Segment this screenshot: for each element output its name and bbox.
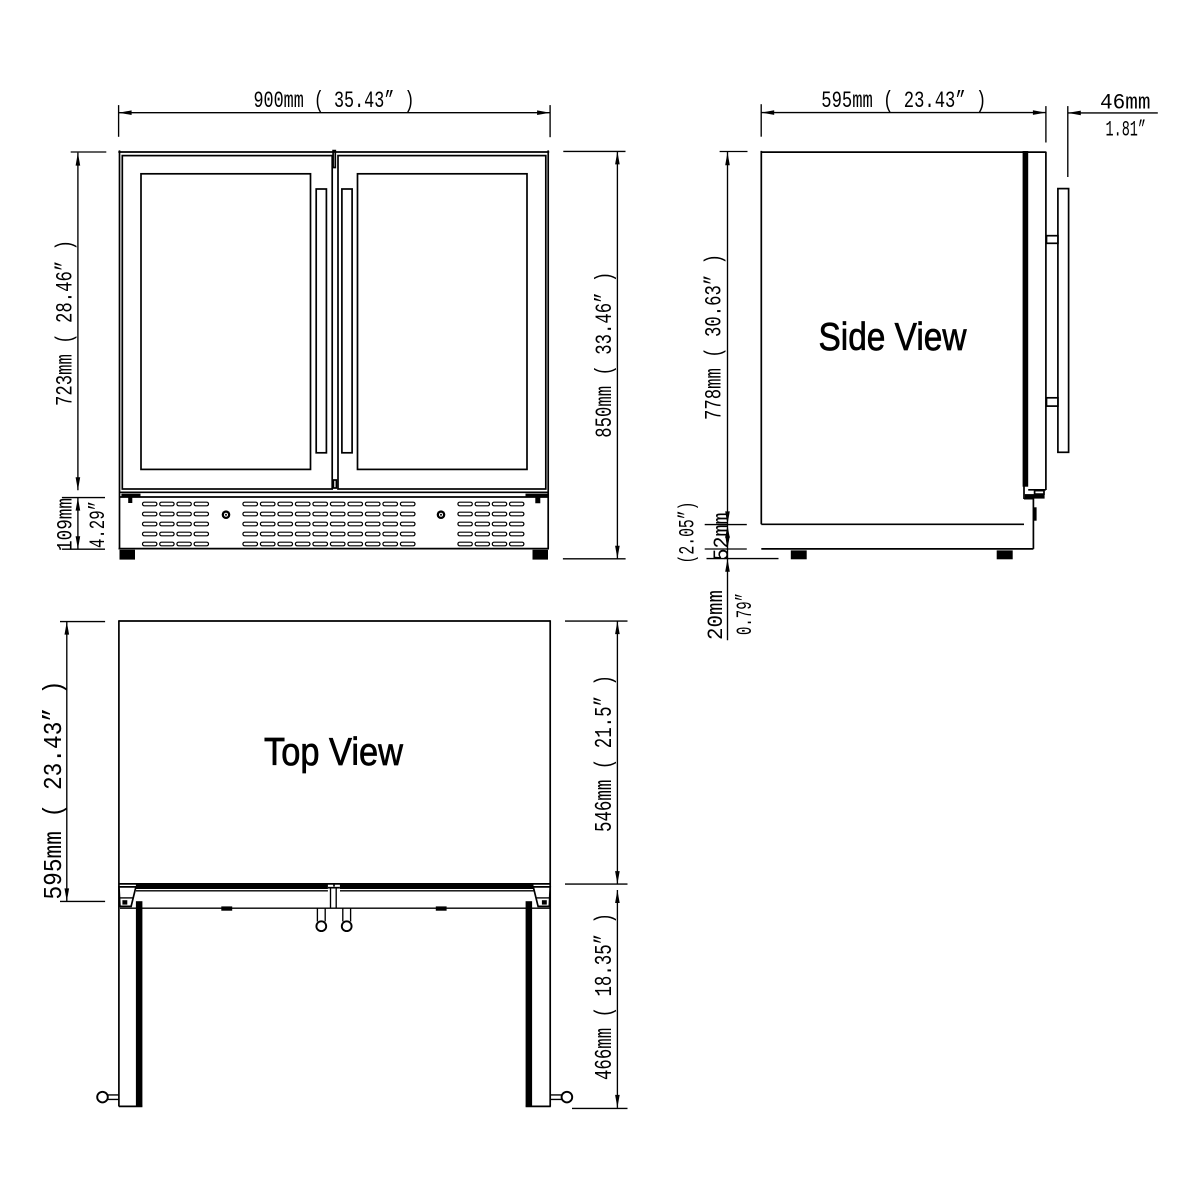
svg-text:(2.05”): (2.05”) — [676, 502, 701, 564]
svg-text:Top View: Top View — [264, 731, 404, 774]
svg-text:466mm ( 18.35” ): 466mm ( 18.35” ) — [592, 913, 619, 1080]
svg-text:46mm: 46mm — [1100, 91, 1151, 116]
svg-text:1.81”: 1.81” — [1106, 118, 1147, 143]
svg-text:595mm ( 23.43” ): 595mm ( 23.43” ) — [39, 681, 69, 900]
svg-text:723mm ( 28.46” ): 723mm ( 28.46” ) — [53, 240, 79, 406]
svg-text:595mm ( 23.43” ): 595mm ( 23.43” ) — [821, 88, 986, 114]
svg-text:546mm ( 21.5” ): 546mm ( 21.5” ) — [592, 675, 619, 832]
svg-text:52mm: 52mm — [710, 513, 735, 561]
svg-text:20mm: 20mm — [704, 590, 729, 640]
svg-text:900mm ( 35.43” ): 900mm ( 35.43” ) — [254, 88, 415, 114]
svg-text:4.29”: 4.29” — [86, 501, 111, 548]
svg-text:Side View: Side View — [819, 316, 968, 359]
svg-text:109mm: 109mm — [53, 498, 78, 551]
svg-text:850mm ( 33.46” ): 850mm ( 33.46” ) — [592, 272, 618, 438]
svg-text:0.79”: 0.79” — [733, 593, 758, 635]
svg-text:778mm ( 30.63” ): 778mm ( 30.63” ) — [701, 254, 727, 420]
